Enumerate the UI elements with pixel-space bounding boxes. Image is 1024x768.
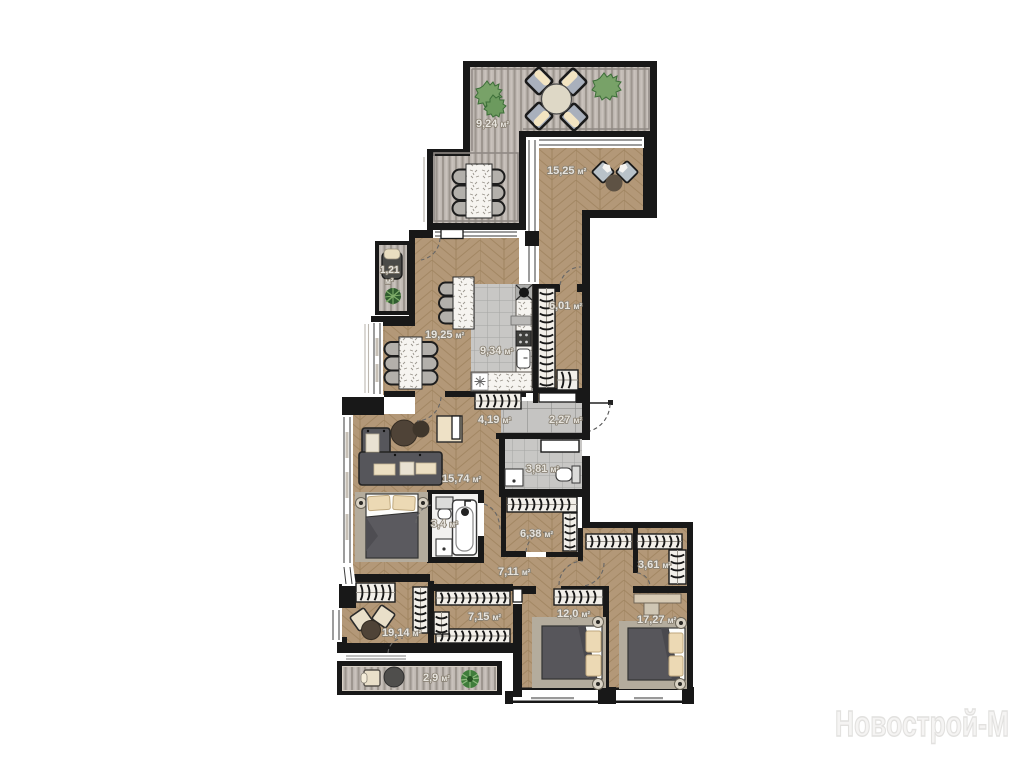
svg-text:7,11 м²: 7,11 м²	[498, 566, 531, 578]
svg-text:1,21: 1,21	[380, 265, 400, 276]
svg-text:3,4 м²: 3,4 м²	[431, 518, 458, 530]
svg-text:19,25 м²: 19,25 м²	[425, 329, 465, 341]
svg-text:15,25 м²: 15,25 м²	[547, 165, 587, 177]
svg-text:9,34 м²: 9,34 м²	[480, 345, 513, 357]
svg-text:9,24 м²: 9,24 м²	[476, 118, 509, 130]
svg-text:15,74 м²: 15,74 м²	[442, 473, 482, 485]
svg-text:19,14 м²: 19,14 м²	[382, 627, 422, 639]
svg-text:2,27 м²: 2,27 м²	[549, 414, 582, 426]
svg-text:12,0 м²: 12,0 м²	[557, 608, 590, 620]
svg-text:3,61 м²: 3,61 м²	[638, 559, 671, 571]
svg-text:м²: м²	[385, 277, 394, 286]
svg-text:4,19 м²: 4,19 м²	[478, 414, 511, 426]
svg-text:6,01 м²: 6,01 м²	[549, 300, 582, 312]
svg-text:17,27 м²: 17,27 м²	[637, 614, 677, 626]
svg-text:6,38 м²: 6,38 м²	[520, 528, 553, 540]
svg-text:3,81 м²: 3,81 м²	[526, 463, 559, 475]
svg-text:Новострой-М: Новострой-М	[835, 703, 1009, 744]
svg-text:2,9 м²: 2,9 м²	[423, 672, 450, 684]
svg-text:7,15 м²: 7,15 м²	[468, 611, 501, 623]
